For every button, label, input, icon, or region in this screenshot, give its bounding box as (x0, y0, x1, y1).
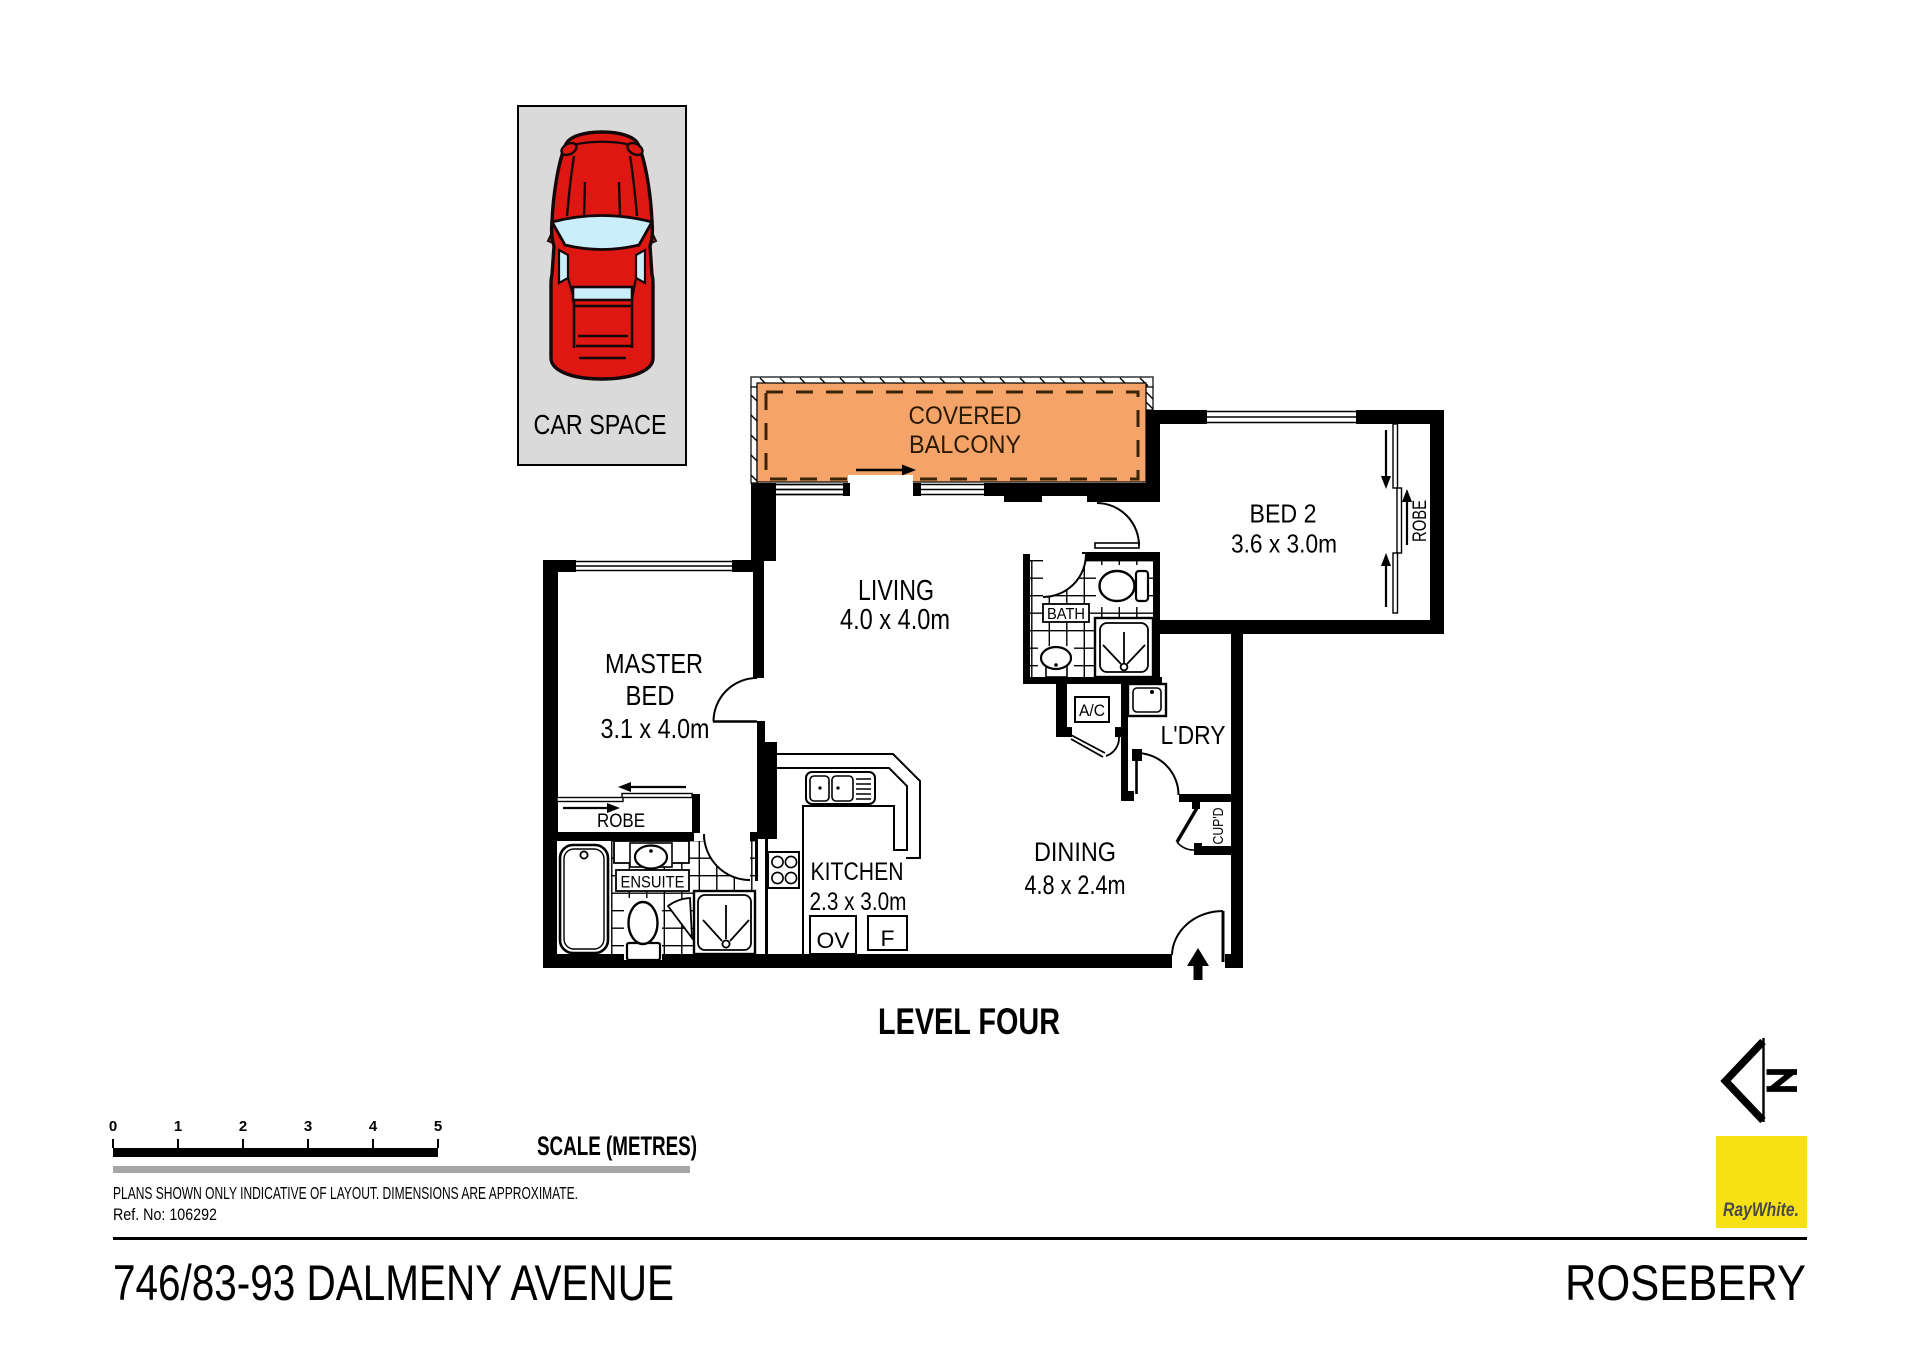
svg-text:CAR SPACE: CAR SPACE (534, 409, 667, 440)
svg-text:3.6 x 3.0m: 3.6 x 3.0m (1231, 529, 1337, 559)
svg-text:ENSUITE: ENSUITE (621, 874, 685, 892)
svg-text:A/C: A/C (1079, 702, 1105, 720)
svg-text:LIVING: LIVING (858, 575, 934, 607)
svg-text:1: 1 (174, 1118, 182, 1135)
svg-text:DINING: DINING (1034, 837, 1116, 867)
svg-text:F: F (881, 926, 895, 951)
svg-text:MASTER: MASTER (605, 648, 703, 679)
svg-text:SCALE (METRES): SCALE (METRES) (537, 1131, 697, 1161)
svg-text:5: 5 (434, 1118, 442, 1135)
svg-text:L'DRY: L'DRY (1161, 720, 1226, 750)
svg-text:RayWhite.: RayWhite. (1723, 1200, 1799, 1221)
svg-text:ROBE: ROBE (1410, 500, 1431, 542)
svg-text:746/83-93 DALMENY AVENUE: 746/83-93 DALMENY AVENUE (113, 1255, 674, 1311)
svg-text:3: 3 (304, 1118, 312, 1135)
svg-text:0: 0 (109, 1118, 117, 1135)
svg-text:LEVEL FOUR: LEVEL FOUR (878, 1001, 1060, 1042)
svg-text:BATH: BATH (1047, 606, 1085, 623)
svg-text:Ref. No: 106292: Ref. No: 106292 (113, 1206, 217, 1224)
svg-text:4: 4 (369, 1118, 378, 1135)
svg-text:KITCHEN: KITCHEN (811, 858, 904, 886)
svg-text:BED 2: BED 2 (1250, 499, 1317, 529)
svg-text:COVERED: COVERED (909, 402, 1022, 430)
svg-text:PLANS SHOWN ONLY INDICATIVE OF: PLANS SHOWN ONLY INDICATIVE OF LAYOUT. D… (113, 1183, 578, 1203)
svg-text:ROBE: ROBE (597, 811, 645, 832)
svg-text:4.8 x 2.4m: 4.8 x 2.4m (1025, 870, 1126, 900)
svg-text:CUP'D: CUP'D (1210, 807, 1227, 844)
svg-text:BED: BED (626, 680, 675, 711)
svg-text:OV: OV (817, 928, 850, 953)
svg-text:2: 2 (239, 1118, 247, 1135)
svg-text:2.3 x 3.0m: 2.3 x 3.0m (810, 888, 907, 916)
svg-text:ROSEBERY: ROSEBERY (1565, 1255, 1806, 1311)
svg-text:3.1 x 4.0m: 3.1 x 4.0m (601, 713, 710, 744)
svg-text:4.0 x 4.0m: 4.0 x 4.0m (840, 604, 950, 636)
svg-text:BALCONY: BALCONY (909, 431, 1021, 459)
